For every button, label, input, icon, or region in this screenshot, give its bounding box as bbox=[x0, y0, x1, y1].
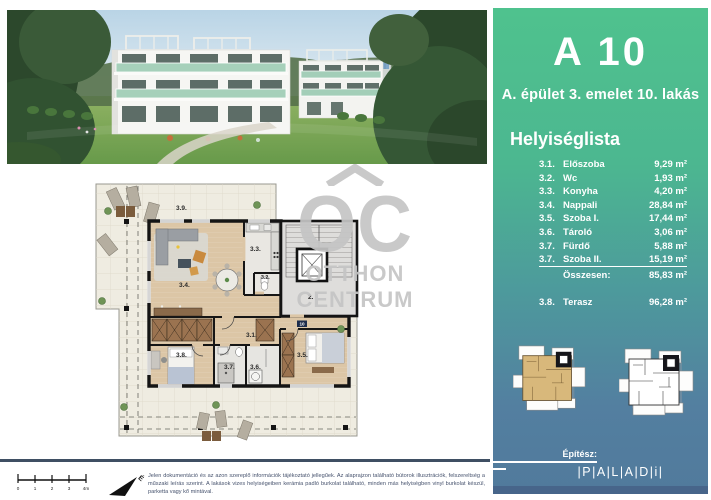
north-arrow-icon: É bbox=[103, 469, 147, 499]
panel-footer-strip bbox=[493, 486, 708, 494]
architect-underline bbox=[493, 461, 597, 463]
room-row: 3.4. Nappali 28,84 m² bbox=[539, 200, 687, 211]
room-list: 3.1. Előszoba 9,29 m² 3.2. Wc 1,93 m² 3.… bbox=[539, 159, 687, 308]
scale-tick-1: 1 bbox=[34, 486, 37, 491]
architect-underline-2 bbox=[493, 468, 506, 470]
room-label-hall: 3.1. bbox=[246, 332, 257, 339]
architect-label: Építész: bbox=[493, 449, 597, 459]
terrace-row: 3.8. Terasz 96,28 m² bbox=[539, 297, 687, 308]
paladi-logo: |P|A|L|A|D|i| bbox=[543, 465, 698, 479]
room-label-storage: 3.6. bbox=[250, 364, 261, 371]
datasheet-page: 10 3.9. 3.4. 3.3. 3.2. 3.1. 3.8. 3.7. 3.… bbox=[0, 0, 711, 500]
scale-tick-3: 3 bbox=[68, 486, 71, 491]
room-row: 3.2. Wc 1,93 m² bbox=[539, 173, 687, 184]
scale-tick-4: 4m bbox=[83, 486, 90, 491]
room-row: 3.3. Konyha 4,20 m² bbox=[539, 186, 687, 197]
building-render-photo bbox=[7, 10, 487, 164]
entry-number-badge: 10 bbox=[299, 322, 305, 327]
room-label-bath: 3.7. bbox=[224, 364, 235, 371]
room-label-kitchen: 3.3. bbox=[250, 246, 261, 253]
scale-tick-0: 0 bbox=[17, 486, 20, 491]
location-mini-outline bbox=[619, 347, 697, 421]
room-row: 3.6. Tároló 3,06 m² bbox=[539, 227, 687, 238]
room-label-stair-core: 2. bbox=[308, 294, 314, 301]
unit-title: A 10 bbox=[493, 8, 708, 75]
total-row: Összesen: 85,83 m² bbox=[539, 270, 687, 281]
room-label-living: 3.4. bbox=[179, 282, 190, 289]
room-row: 3.7. Fürdő 5,88 m² bbox=[539, 241, 687, 252]
unit-subtitle: A. épület 3. emelet 10. lakás bbox=[493, 87, 708, 103]
room-label-bedroom-right: 3.5. bbox=[297, 352, 308, 359]
room-row: 3.5. Szoba I. 17,44 m² bbox=[539, 213, 687, 224]
north-letter: É bbox=[136, 473, 146, 483]
disclaimer-text: Jelen dokumentáció és az azon szereplő i… bbox=[148, 472, 485, 496]
room-list-heading: Helyiséglista bbox=[510, 129, 708, 150]
room-row: 3.7. Szoba II. 15,19 m² bbox=[539, 254, 687, 267]
floor-plan: 10 3.9. 3.4. 3.3. 3.2. 3.1. 3.8. 3.7. 3.… bbox=[94, 177, 366, 441]
scale-bar: 0 1 2 3 4m bbox=[14, 471, 92, 497]
room-label-wc: 3.2. bbox=[261, 275, 270, 281]
footer-divider-line bbox=[0, 459, 490, 462]
location-mini-highlighted bbox=[513, 344, 589, 416]
room-row: 3.1. Előszoba 9,29 m² bbox=[539, 159, 687, 170]
room-label-terrace: 3.9. bbox=[176, 205, 187, 212]
scale-tick-2: 2 bbox=[51, 486, 54, 491]
stair-core bbox=[281, 221, 357, 318]
room-label-bedroom-left: 3.8. bbox=[176, 352, 187, 359]
info-panel: A 10 A. épület 3. emelet 10. lakás Helyi… bbox=[493, 8, 708, 494]
